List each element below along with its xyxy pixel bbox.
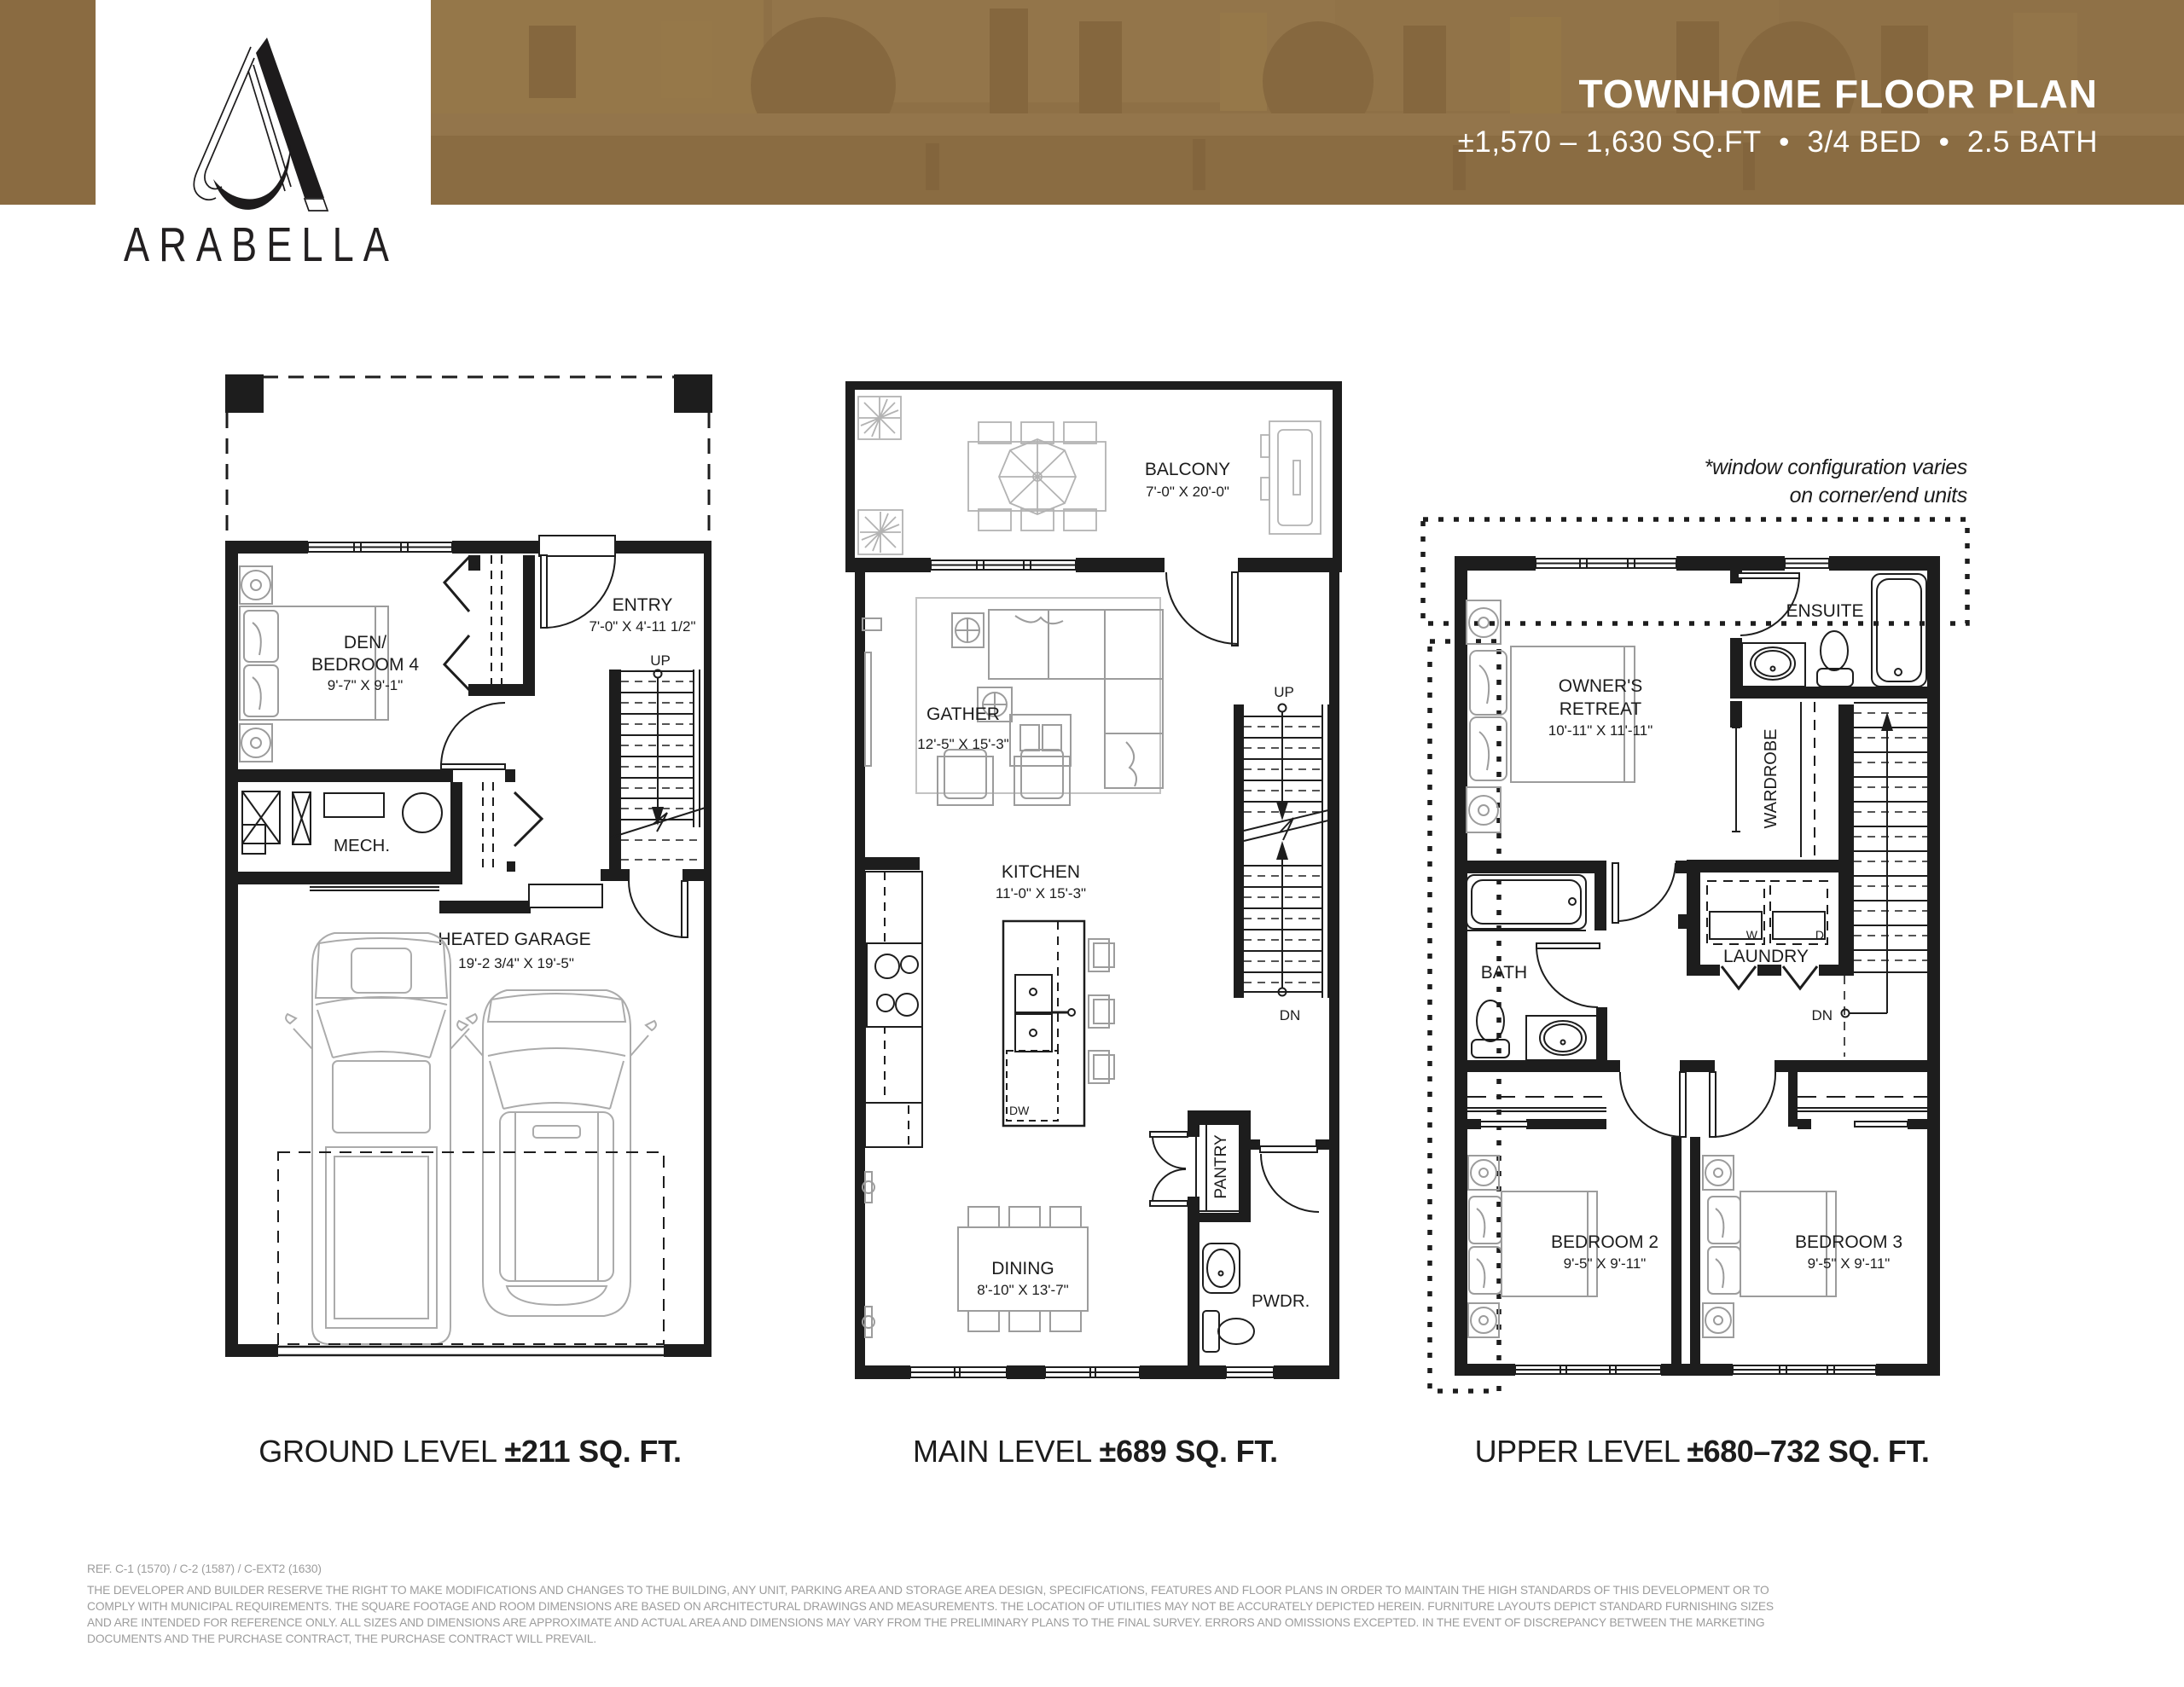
svg-text:BEDROOM 2: BEDROOM 2: [1551, 1232, 1658, 1252]
svg-text:7'-0" X 4'-11 1/2": 7'-0" X 4'-11 1/2": [589, 618, 695, 635]
svg-text:DW: DW: [1009, 1104, 1030, 1117]
svg-text:9'-5" X 9'-11": 9'-5" X 9'-11": [1808, 1255, 1891, 1272]
svg-text:*window configuration varies: *window configuration varies: [1705, 455, 1967, 479]
svg-text:±1,570 – 1,630 SQ.FT • 3/4 B: ±1,570 – 1,630 SQ.FT • 3/4 BED • 2.5 BAT…: [1458, 125, 2098, 159]
svg-text:DINING: DINING: [991, 1259, 1054, 1278]
svg-text:DN: DN: [1280, 1007, 1301, 1023]
svg-text:MECH.: MECH.: [334, 836, 390, 855]
svg-text:GROUND LEVEL ±211 SQ. FT.: GROUND LEVEL ±211 SQ. FT.: [258, 1434, 682, 1469]
svg-text:7'-0" X 20'-0": 7'-0" X 20'-0": [1146, 484, 1229, 500]
svg-text:D: D: [1815, 928, 1824, 942]
svg-text:9'-5" X 9'-11": 9'-5" X 9'-11": [1564, 1255, 1647, 1272]
svg-text:DEN/: DEN/: [344, 633, 386, 652]
svg-text:W: W: [1746, 928, 1758, 942]
svg-text:TOWNHOME FLOOR PLAN: TOWNHOME FLOOR PLAN: [1579, 72, 2098, 116]
svg-text:KITCHEN: KITCHEN: [1002, 862, 1080, 882]
svg-text:19'-2 3/4" X 19'-5": 19'-2 3/4" X 19'-5": [458, 955, 574, 971]
svg-text:WARDROBE: WARDROBE: [1762, 728, 1780, 828]
svg-text:LAUNDRY: LAUNDRY: [1723, 947, 1809, 966]
svg-text:THE DEVELOPER AND BUILDER RESE: THE DEVELOPER AND BUILDER RESERVE THE RI…: [87, 1584, 1769, 1597]
svg-text:PWDR.: PWDR.: [1252, 1291, 1310, 1311]
svg-text:BATH: BATH: [1481, 963, 1527, 983]
svg-text:10'-11" X 11'-11": 10'-11" X 11'-11": [1548, 722, 1653, 739]
svg-text:MAIN LEVEL ±689 SQ. FT.: MAIN LEVEL ±689 SQ. FT.: [913, 1434, 1278, 1469]
svg-text:9'-7" X 9'-1": 9'-7" X 9'-1": [328, 677, 404, 693]
svg-text:COMPLY WITH MUNICIPAL REQUIREM: COMPLY WITH MUNICIPAL REQUIREMENTS. THE …: [87, 1600, 1774, 1613]
svg-text:BALCONY: BALCONY: [1145, 460, 1230, 479]
svg-text:BEDROOM 4: BEDROOM 4: [311, 655, 419, 675]
svg-text:UP: UP: [1274, 684, 1294, 700]
svg-text:HEATED GARAGE: HEATED GARAGE: [438, 930, 590, 949]
svg-text:UP: UP: [650, 652, 671, 669]
svg-text:OWNER'S: OWNER'S: [1559, 676, 1643, 696]
svg-text:8'-10" X 13'-7": 8'-10" X 13'-7": [977, 1282, 1068, 1298]
svg-text:GATHER: GATHER: [926, 704, 1000, 724]
svg-text:11'-0" X 15'-3": 11'-0" X 15'-3": [996, 885, 1086, 901]
svg-text:RETREAT: RETREAT: [1560, 699, 1642, 719]
svg-text:ENSUITE: ENSUITE: [1786, 601, 1863, 621]
svg-text:PANTRY: PANTRY: [1212, 1134, 1230, 1199]
svg-text:ENTRY: ENTRY: [613, 595, 673, 615]
svg-text:12'-5" X 15'-3": 12'-5" X 15'-3": [917, 736, 1008, 752]
svg-text:BEDROOM 3: BEDROOM 3: [1795, 1232, 1902, 1252]
svg-text:ARABELLA: ARABELLA: [124, 217, 398, 272]
svg-text:AND ARE INTENDED FOR REFERENCE: AND ARE INTENDED FOR REFERENCE ONLY. ALL…: [87, 1616, 1764, 1629]
svg-text:REF. C-1 (1570) / C-2 (1587): REF. C-1 (1570) / C-2 (1587) / C-EXT2 (1…: [87, 1562, 322, 1575]
svg-text:DOCUMENTS AND THE PURCHASE CON: DOCUMENTS AND THE PURCHASE CONTRACT, THE…: [87, 1632, 596, 1645]
svg-text:UPPER LEVEL ±680–732 SQ. FT.: UPPER LEVEL ±680–732 SQ. FT.: [1475, 1434, 1930, 1469]
svg-text:DN: DN: [1811, 1007, 1833, 1023]
svg-text:on corner/end units: on corner/end units: [1790, 484, 1967, 507]
